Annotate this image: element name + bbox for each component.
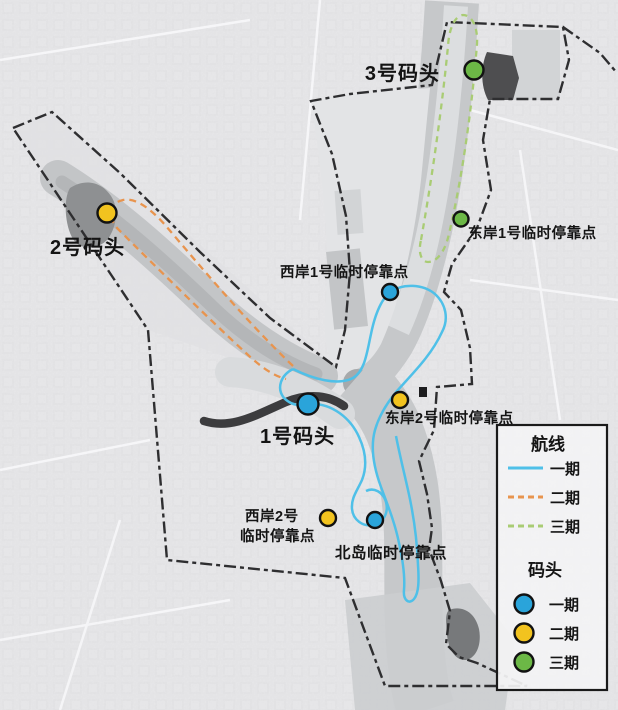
legend-route1-label: 一期 (550, 460, 580, 478)
legend-docks-title: 码头 (528, 561, 562, 580)
dock-1-marker (298, 394, 319, 415)
dock-3-label: 3号码头 (365, 62, 440, 85)
dock-2-label: 2号码头 (50, 236, 125, 259)
dock-1-label: 1号码头 (260, 425, 335, 448)
legend-route2-label: 二期 (550, 489, 580, 507)
stop-west2-marker (320, 510, 336, 526)
dock-2-marker (98, 204, 117, 223)
stop-north-island-label: 北岛临时停靠点 (335, 543, 447, 562)
stop-west1-marker (382, 284, 398, 300)
dock-3-marker (465, 61, 484, 80)
stop-east1-marker (454, 212, 469, 227)
stop-north-island-marker (367, 512, 383, 528)
stop-west1-label: 西岸1号临时停靠点 (280, 263, 409, 281)
stop-east2-label: 东岸2号临时停靠点 (385, 409, 514, 427)
stop-west2-label-line1: 西岸2号 (245, 507, 299, 525)
legend-route3-label: 三期 (550, 518, 580, 536)
stop-east1-label: 东岸1号临时停靠点 (468, 224, 597, 242)
legend-dock3-swatch (515, 653, 534, 672)
legend-dock3-label: 三期 (549, 654, 579, 672)
legend-dock2-swatch (515, 624, 534, 643)
legend-dock1-label: 一期 (549, 596, 579, 614)
stop-east2-marker (392, 392, 408, 408)
stop-west2-label-line2: 临时停靠点 (240, 527, 315, 545)
legend-dock2-label: 二期 (549, 625, 579, 643)
legend: 航线 一期 二期 三期 码头 一期 二期 三期 (497, 425, 607, 690)
map-canvas: 3号码头 2号码头 1号码头 东岸1号临时停靠点 西岸1号临时停靠点 东岸2号临… (0, 0, 618, 710)
route-plan-map: 3号码头 2号码头 1号码头 东岸1号临时停靠点 西岸1号临时停靠点 东岸2号临… (0, 0, 618, 710)
legend-dock1-swatch (515, 595, 534, 614)
legend-routes-title: 航线 (531, 434, 565, 454)
